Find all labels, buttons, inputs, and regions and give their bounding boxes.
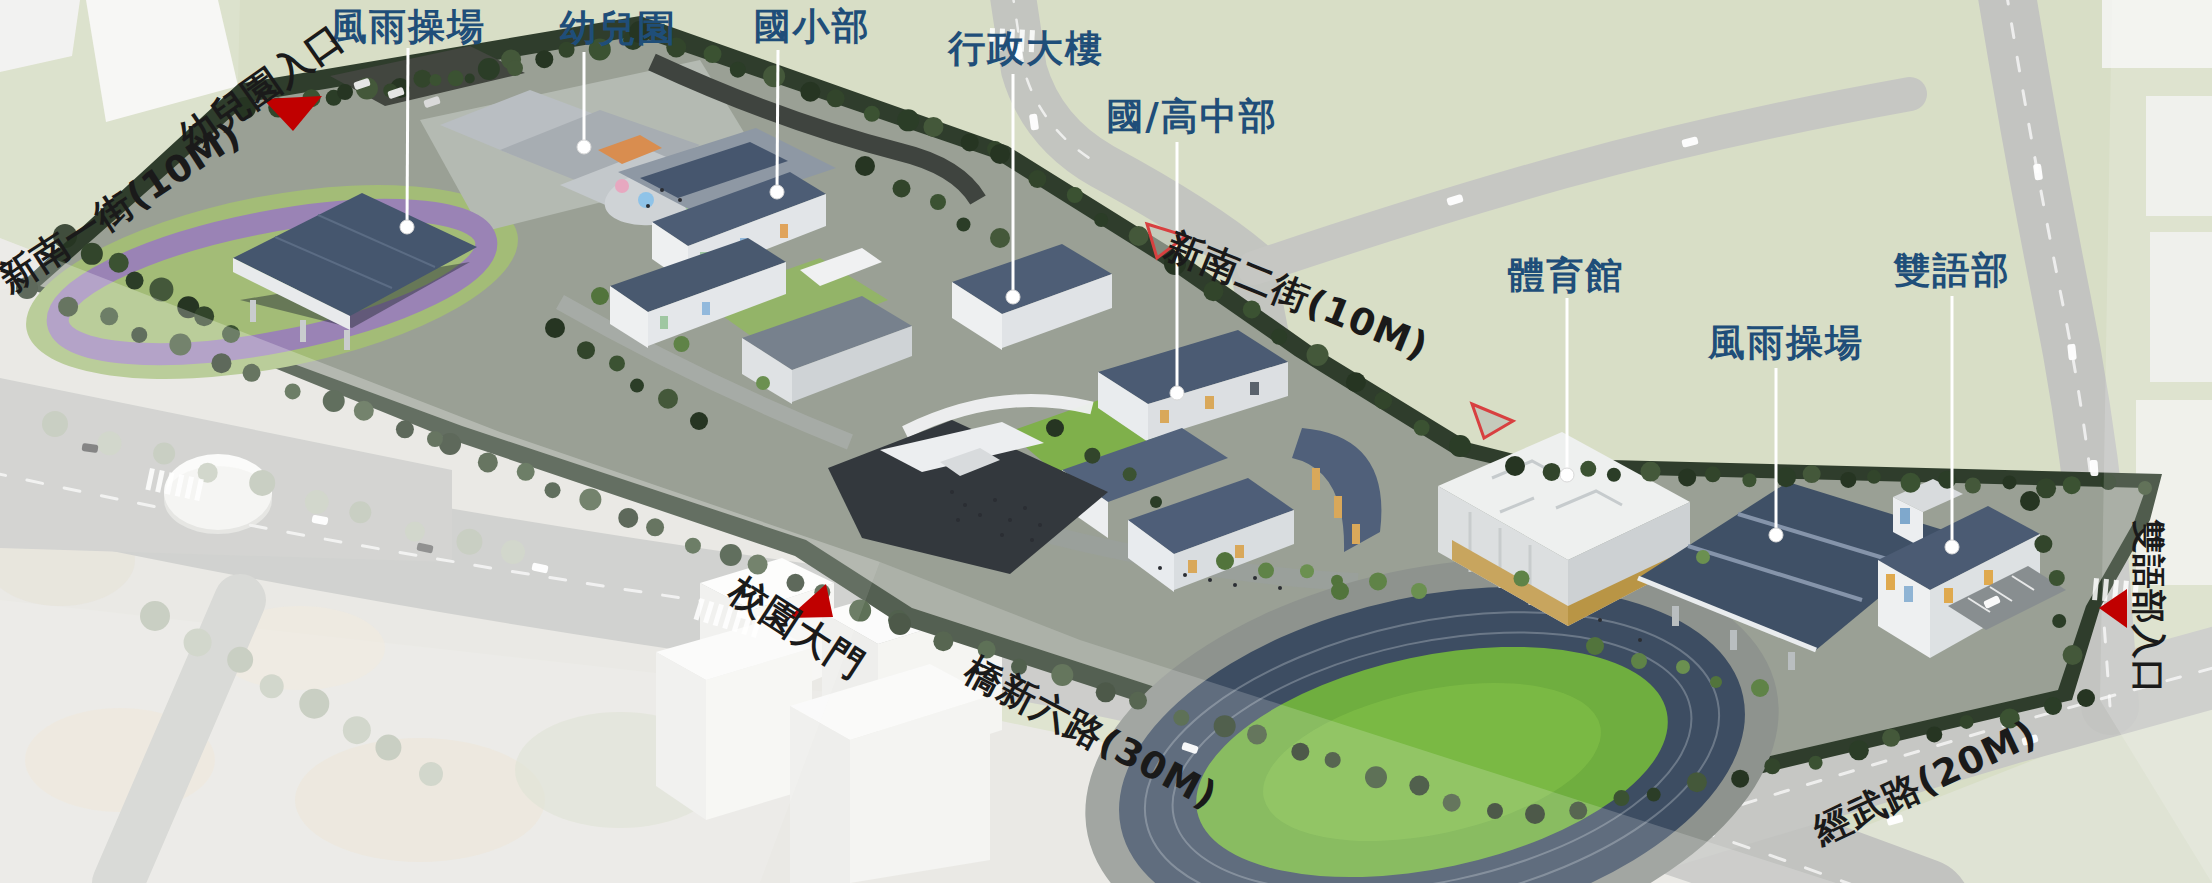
tree bbox=[1307, 344, 1329, 366]
tree bbox=[1514, 571, 1530, 587]
campus-aerial-rendering: 風雨操場 幼兒園 國小部 行政大樓 國/高中部 體育館 風雨操場 雙語部 幼兒園… bbox=[0, 0, 2212, 883]
tree bbox=[1300, 564, 1314, 578]
tree bbox=[1776, 467, 1796, 487]
tree bbox=[535, 50, 553, 68]
tree bbox=[897, 109, 919, 131]
tree bbox=[577, 341, 595, 359]
person bbox=[950, 490, 954, 494]
tree bbox=[1840, 472, 1856, 488]
label-bilingual-division: 雙語部 bbox=[1894, 252, 2011, 289]
label-junior-senior-high: 國/高中部 bbox=[1106, 98, 1278, 135]
tree bbox=[545, 318, 565, 338]
tree bbox=[1067, 187, 1083, 203]
tree bbox=[507, 60, 523, 76]
tree bbox=[1687, 772, 1707, 792]
tree bbox=[1129, 226, 1149, 246]
person bbox=[1030, 538, 1034, 542]
tree bbox=[1742, 473, 1756, 487]
tree bbox=[1374, 392, 1392, 410]
tree bbox=[1580, 461, 1596, 477]
person bbox=[678, 198, 682, 202]
tree bbox=[1867, 470, 1881, 484]
person bbox=[1000, 533, 1004, 537]
label-kindergarten: 幼兒園 bbox=[560, 10, 677, 47]
tree bbox=[957, 218, 971, 232]
tree bbox=[1849, 740, 1869, 760]
tree bbox=[763, 65, 785, 87]
tree bbox=[109, 253, 129, 273]
label-covered-playground-east: 風雨操場 bbox=[1708, 324, 1864, 361]
tree bbox=[1094, 213, 1108, 227]
tree bbox=[1613, 790, 1629, 806]
tree bbox=[1411, 583, 1427, 599]
tree bbox=[630, 379, 644, 393]
tree bbox=[2002, 475, 2016, 489]
tree bbox=[609, 355, 625, 371]
tree bbox=[1676, 660, 1690, 674]
tree bbox=[413, 70, 431, 88]
tree bbox=[2044, 697, 2062, 715]
tree bbox=[465, 74, 475, 84]
person bbox=[993, 498, 997, 502]
tree bbox=[478, 58, 500, 80]
tree bbox=[893, 180, 911, 198]
person bbox=[660, 188, 664, 192]
tree bbox=[1926, 726, 1942, 742]
tree bbox=[800, 82, 820, 102]
tree bbox=[1028, 170, 1046, 188]
tree bbox=[1731, 770, 1749, 788]
label-bilingual-entrance: 雙語部入口 bbox=[2132, 520, 2166, 695]
tree bbox=[2063, 645, 2083, 665]
tree bbox=[1882, 729, 1900, 747]
tree bbox=[1678, 468, 1696, 486]
tree bbox=[126, 272, 144, 290]
tree bbox=[2077, 689, 2095, 707]
tree bbox=[1641, 462, 1661, 482]
tree bbox=[1751, 679, 1769, 697]
tree bbox=[990, 144, 1010, 164]
tree bbox=[2034, 535, 2052, 553]
car bbox=[2089, 460, 2098, 477]
person bbox=[1023, 506, 1027, 510]
tree bbox=[1369, 572, 1387, 590]
tree bbox=[2052, 614, 2066, 628]
tree bbox=[1710, 676, 1722, 688]
tree bbox=[1449, 435, 1471, 457]
tree bbox=[1938, 471, 1956, 489]
person bbox=[1183, 573, 1187, 577]
tree bbox=[1803, 465, 1821, 483]
tree bbox=[827, 89, 845, 107]
tree bbox=[730, 62, 746, 78]
tree bbox=[1809, 756, 1823, 770]
person bbox=[963, 503, 967, 507]
tree bbox=[1505, 456, 1525, 476]
tree bbox=[864, 106, 880, 122]
person bbox=[1253, 576, 1257, 580]
tree bbox=[1965, 478, 1981, 494]
person bbox=[978, 513, 982, 517]
tree bbox=[990, 228, 1010, 248]
tree bbox=[1960, 715, 1974, 729]
tree bbox=[591, 287, 609, 305]
person bbox=[1598, 618, 1602, 622]
person bbox=[1008, 518, 1012, 522]
tree bbox=[1901, 473, 1921, 493]
label-gymnasium: 體育館 bbox=[1508, 257, 1625, 294]
tree bbox=[1764, 758, 1780, 774]
tree bbox=[756, 376, 770, 390]
person bbox=[956, 518, 960, 522]
tree bbox=[1586, 637, 1604, 655]
car bbox=[2067, 344, 2077, 361]
tree bbox=[1123, 467, 1137, 481]
tree bbox=[690, 412, 708, 430]
tree bbox=[1346, 372, 1366, 392]
tree bbox=[1331, 582, 1349, 600]
tree bbox=[1046, 419, 1064, 437]
tree bbox=[337, 84, 353, 100]
tree bbox=[704, 45, 722, 63]
label-elementary-division: 國小部 bbox=[754, 8, 871, 45]
tree bbox=[1150, 496, 1162, 508]
tree bbox=[1414, 420, 1430, 436]
tree bbox=[1216, 552, 1234, 570]
tree bbox=[448, 70, 464, 86]
tree bbox=[1084, 448, 1100, 464]
tree bbox=[658, 389, 678, 409]
person bbox=[1638, 638, 1642, 642]
person bbox=[1208, 578, 1212, 582]
tree bbox=[1647, 788, 1661, 802]
tree bbox=[923, 117, 943, 137]
tree bbox=[1631, 653, 1647, 669]
tree bbox=[961, 133, 979, 151]
tree bbox=[674, 336, 690, 352]
tree bbox=[1543, 463, 1561, 481]
tree bbox=[430, 74, 442, 86]
person bbox=[1233, 583, 1237, 587]
person bbox=[1278, 586, 1282, 590]
person bbox=[1038, 523, 1042, 527]
label-admin-building: 行政大樓 bbox=[948, 30, 1104, 67]
person bbox=[646, 204, 650, 208]
tree bbox=[2049, 570, 2065, 586]
tree bbox=[855, 156, 875, 176]
tree bbox=[1696, 550, 1710, 564]
tree bbox=[2036, 478, 2056, 498]
tree bbox=[1271, 329, 1287, 345]
label-covered-playground-west: 風雨操場 bbox=[330, 8, 486, 45]
tree bbox=[1705, 466, 1721, 482]
person bbox=[1158, 566, 1162, 570]
tree bbox=[2020, 491, 2040, 511]
tree bbox=[1258, 563, 1274, 579]
tree bbox=[1607, 468, 1621, 482]
tree bbox=[2063, 476, 2081, 494]
tree bbox=[930, 194, 946, 210]
